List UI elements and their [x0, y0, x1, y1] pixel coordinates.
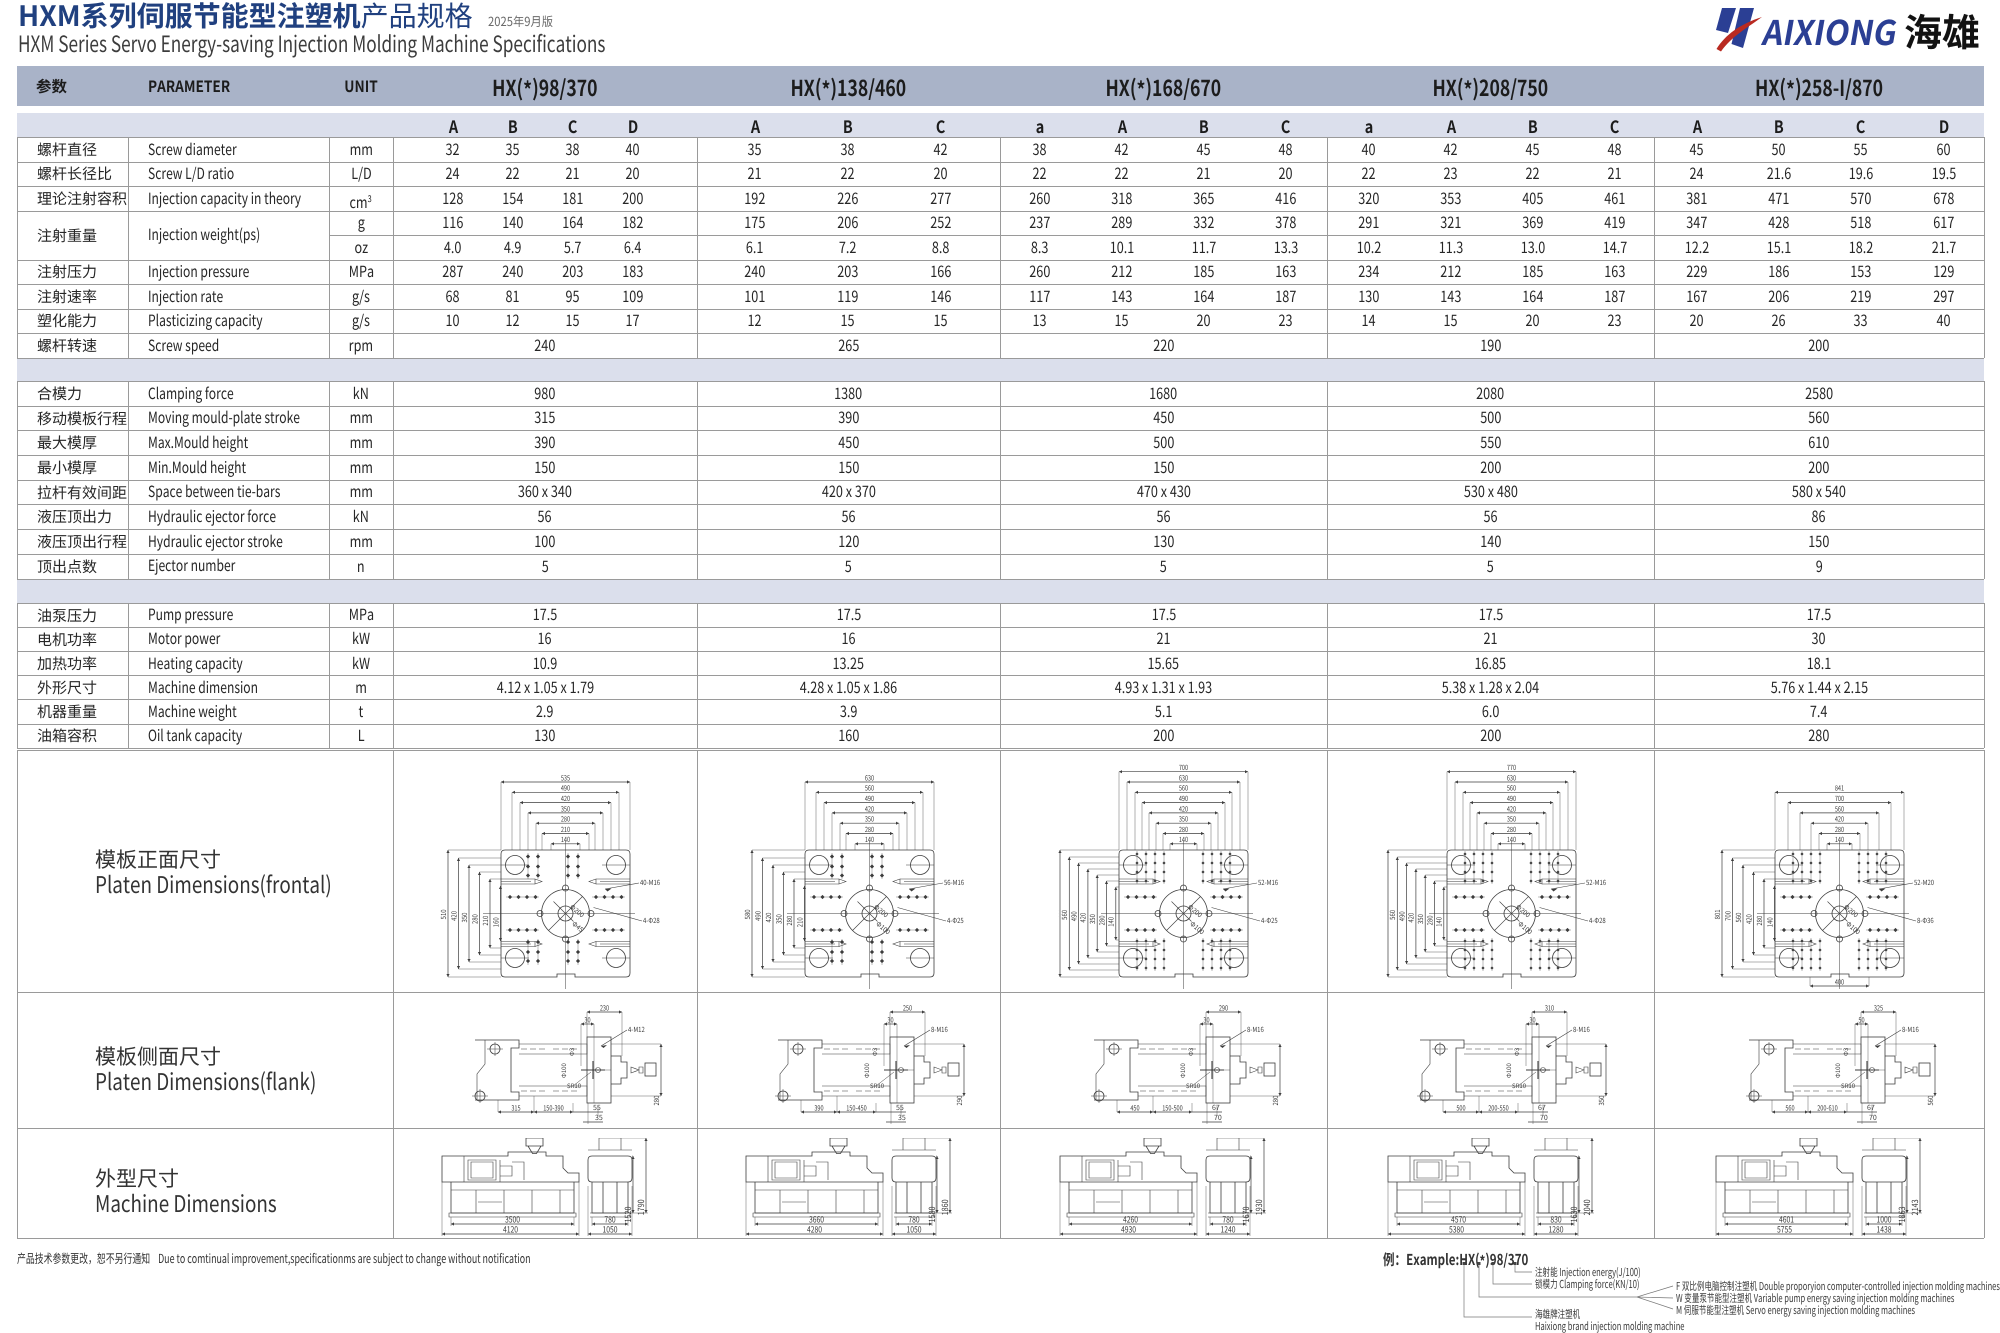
svg-text:Φ100: Φ100: [559, 1063, 568, 1078]
svg-text:4-Φ28: 4-Φ28: [1589, 914, 1606, 925]
svg-text:1050: 1050: [906, 1224, 921, 1236]
svg-text:70: 70: [1540, 1113, 1548, 1123]
svg-text:390: 390: [814, 1103, 824, 1113]
svg-text:35: 35: [595, 1113, 603, 1123]
svg-text:400: 400: [1835, 977, 1845, 987]
svg-text:630: 630: [1179, 773, 1189, 783]
svg-text:841: 841: [1835, 783, 1845, 793]
svg-text:630: 630: [1507, 773, 1517, 783]
svg-text:SR10: SR10: [870, 1081, 885, 1090]
svg-text:630: 630: [865, 773, 875, 783]
svg-text:4-Φ25: 4-Φ25: [947, 914, 964, 925]
svg-text:350: 350: [773, 914, 784, 924]
svg-text:4930: 4930: [1121, 1224, 1136, 1236]
svg-text:560: 560: [865, 783, 875, 793]
svg-text:280: 280: [783, 915, 794, 925]
svg-text:1580: 1580: [926, 1206, 938, 1222]
svg-text:280: 280: [561, 814, 571, 824]
svg-text:350: 350: [865, 814, 875, 824]
svg-text:1050: 1050: [602, 1224, 617, 1236]
svg-text:Φ3: Φ3: [870, 1048, 879, 1056]
svg-text:560: 560: [1835, 804, 1845, 814]
svg-text:4-Φ28: 4-Φ28: [643, 914, 660, 925]
svg-text:350: 350: [561, 804, 571, 814]
svg-text:67: 67: [1212, 1103, 1220, 1113]
svg-text:8-M16: 8-M16: [1573, 1023, 1590, 1034]
svg-text:290: 290: [953, 1095, 964, 1105]
svg-text:40-M16: 40-M16: [640, 876, 660, 887]
svg-text:Φ100: Φ100: [1844, 918, 1863, 936]
svg-text:560: 560: [1732, 912, 1743, 922]
svg-text:420: 420: [762, 912, 773, 922]
svg-text:420: 420: [1743, 914, 1754, 924]
svg-text:420: 420: [561, 793, 571, 803]
svg-text:Φ200: Φ200: [1842, 901, 1861, 919]
svg-text:Φ200: Φ200: [872, 901, 891, 919]
svg-text:Φ3: Φ3: [567, 1048, 576, 1056]
svg-text:560: 560: [1785, 1103, 1795, 1113]
svg-text:490: 490: [752, 911, 763, 921]
svg-text:5380: 5380: [1449, 1224, 1464, 1236]
svg-text:350: 350: [1179, 814, 1189, 824]
svg-text:Φ100: Φ100: [1516, 918, 1535, 936]
svg-text:315: 315: [511, 1103, 521, 1113]
svg-text:420: 420: [865, 804, 875, 814]
svg-text:55: 55: [896, 1103, 904, 1113]
svg-text:200-610: 200-610: [1817, 1103, 1838, 1113]
svg-text:70: 70: [1869, 1113, 1877, 1123]
svg-text:140: 140: [1764, 917, 1775, 927]
svg-text:70: 70: [1214, 1113, 1222, 1123]
svg-text:AIXIONG: AIXIONG: [1758, 5, 1902, 55]
svg-text:Φ200: Φ200: [1514, 901, 1533, 919]
svg-text:490: 490: [865, 793, 875, 803]
svg-text:Φ100: Φ100: [1178, 1063, 1187, 1078]
svg-text:1863: 1863: [1896, 1206, 1908, 1222]
svg-text:140: 140: [1105, 917, 1116, 927]
svg-text:560: 560: [1924, 1095, 1935, 1105]
svg-text:310: 310: [1545, 1004, 1555, 1013]
svg-text:35: 35: [898, 1113, 906, 1123]
svg-text:350: 350: [1507, 814, 1517, 824]
svg-text:SR10: SR10: [1186, 1081, 1201, 1090]
svg-text:SR10: SR10: [1841, 1081, 1856, 1090]
svg-text:SR10: SR10: [567, 1081, 582, 1090]
svg-text:280: 280: [1269, 1095, 1280, 1105]
svg-text:30: 30: [1203, 1015, 1210, 1025]
svg-text:30: 30: [584, 1015, 591, 1025]
svg-text:490: 490: [1507, 793, 1517, 803]
svg-text:1438: 1438: [1876, 1224, 1891, 1236]
svg-text:560: 560: [1179, 783, 1189, 793]
svg-text:150-450: 150-450: [846, 1103, 867, 1113]
svg-text:1520: 1520: [622, 1206, 634, 1222]
svg-text:560: 560: [1507, 783, 1517, 793]
svg-text:700: 700: [1179, 762, 1189, 772]
svg-text:280: 280: [1835, 824, 1845, 834]
svg-text:200-550: 200-550: [1488, 1103, 1509, 1113]
svg-text:海雄: 海雄: [1904, 5, 1980, 55]
svg-text:210: 210: [794, 917, 805, 927]
svg-text:52-M16: 52-M16: [1586, 876, 1606, 887]
svg-text:8-Φ36: 8-Φ36: [1917, 914, 1934, 925]
svg-text:350: 350: [1595, 1095, 1606, 1105]
svg-text:420: 420: [1835, 814, 1845, 824]
svg-text:67: 67: [1538, 1103, 1546, 1113]
svg-text:30: 30: [1529, 1015, 1536, 1025]
svg-text:490: 490: [561, 783, 571, 793]
svg-text:280: 280: [469, 914, 480, 924]
svg-text:210: 210: [561, 824, 571, 834]
svg-text:Φ100: Φ100: [1833, 1063, 1842, 1078]
svg-text:770: 770: [1507, 762, 1517, 772]
svg-text:280: 280: [1753, 915, 1764, 925]
svg-text:490: 490: [1179, 793, 1189, 803]
svg-text:325: 325: [1874, 1004, 1884, 1013]
svg-text:5755: 5755: [1777, 1224, 1792, 1236]
svg-text:450: 450: [1130, 1103, 1140, 1113]
svg-text:Φ3: Φ3: [1186, 1048, 1195, 1056]
svg-text:SR10: SR10: [1512, 1081, 1527, 1090]
svg-text:Φ3: Φ3: [1512, 1048, 1521, 1056]
svg-text:30: 30: [887, 1015, 894, 1025]
svg-text:280: 280: [865, 824, 875, 834]
svg-text:150-500: 150-500: [1162, 1103, 1183, 1113]
svg-text:50: 50: [1858, 1015, 1865, 1025]
svg-text:500: 500: [1456, 1103, 1466, 1113]
svg-text:8-M16: 8-M16: [931, 1023, 948, 1034]
svg-text:4-Φ25: 4-Φ25: [1261, 914, 1278, 925]
svg-text:535: 535: [561, 773, 571, 783]
svg-text:4120: 4120: [503, 1224, 518, 1236]
svg-text:1670: 1670: [1240, 1206, 1252, 1222]
svg-text:4-M12: 4-M12: [628, 1023, 645, 1034]
svg-text:700: 700: [1835, 793, 1845, 803]
svg-text:56-M16: 56-M16: [944, 876, 964, 887]
svg-text:230: 230: [600, 1004, 610, 1013]
svg-text:52-M16: 52-M16: [1258, 876, 1278, 887]
svg-text:8-M16: 8-M16: [1902, 1023, 1919, 1034]
svg-text:290: 290: [1219, 1004, 1229, 1013]
svg-text:250: 250: [903, 1004, 913, 1013]
svg-text:420: 420: [1179, 804, 1189, 814]
svg-text:280: 280: [650, 1095, 661, 1105]
svg-text:140: 140: [1433, 917, 1444, 927]
svg-text:1280: 1280: [1548, 1224, 1563, 1236]
svg-text:1630: 1630: [1568, 1206, 1580, 1222]
svg-text:Φ100: Φ100: [874, 918, 893, 936]
svg-text:280: 280: [1507, 824, 1517, 834]
svg-text:Φ100: Φ100: [1188, 918, 1207, 936]
svg-text:52-M20: 52-M20: [1914, 876, 1934, 887]
svg-text:280: 280: [1179, 824, 1189, 834]
svg-text:700: 700: [1722, 911, 1733, 921]
svg-text:350: 350: [458, 912, 469, 922]
svg-text:67: 67: [1867, 1103, 1875, 1113]
svg-text:4280: 4280: [807, 1224, 822, 1236]
svg-text:160: 160: [490, 917, 501, 927]
svg-text:210: 210: [479, 915, 490, 925]
svg-text:Φ100: Φ100: [862, 1063, 871, 1078]
svg-text:Φ3: Φ3: [1841, 1048, 1850, 1056]
svg-text:Φ200: Φ200: [1186, 901, 1205, 919]
svg-text:8-M16: 8-M16: [1247, 1023, 1264, 1034]
svg-text:420: 420: [448, 911, 459, 921]
svg-text:420: 420: [1507, 804, 1517, 814]
svg-text:150-390: 150-390: [543, 1103, 564, 1113]
svg-text:55: 55: [593, 1103, 601, 1113]
svg-text:Φ200: Φ200: [568, 901, 587, 919]
svg-text:1240: 1240: [1220, 1224, 1235, 1236]
svg-text:Φ100: Φ100: [1504, 1063, 1513, 1078]
